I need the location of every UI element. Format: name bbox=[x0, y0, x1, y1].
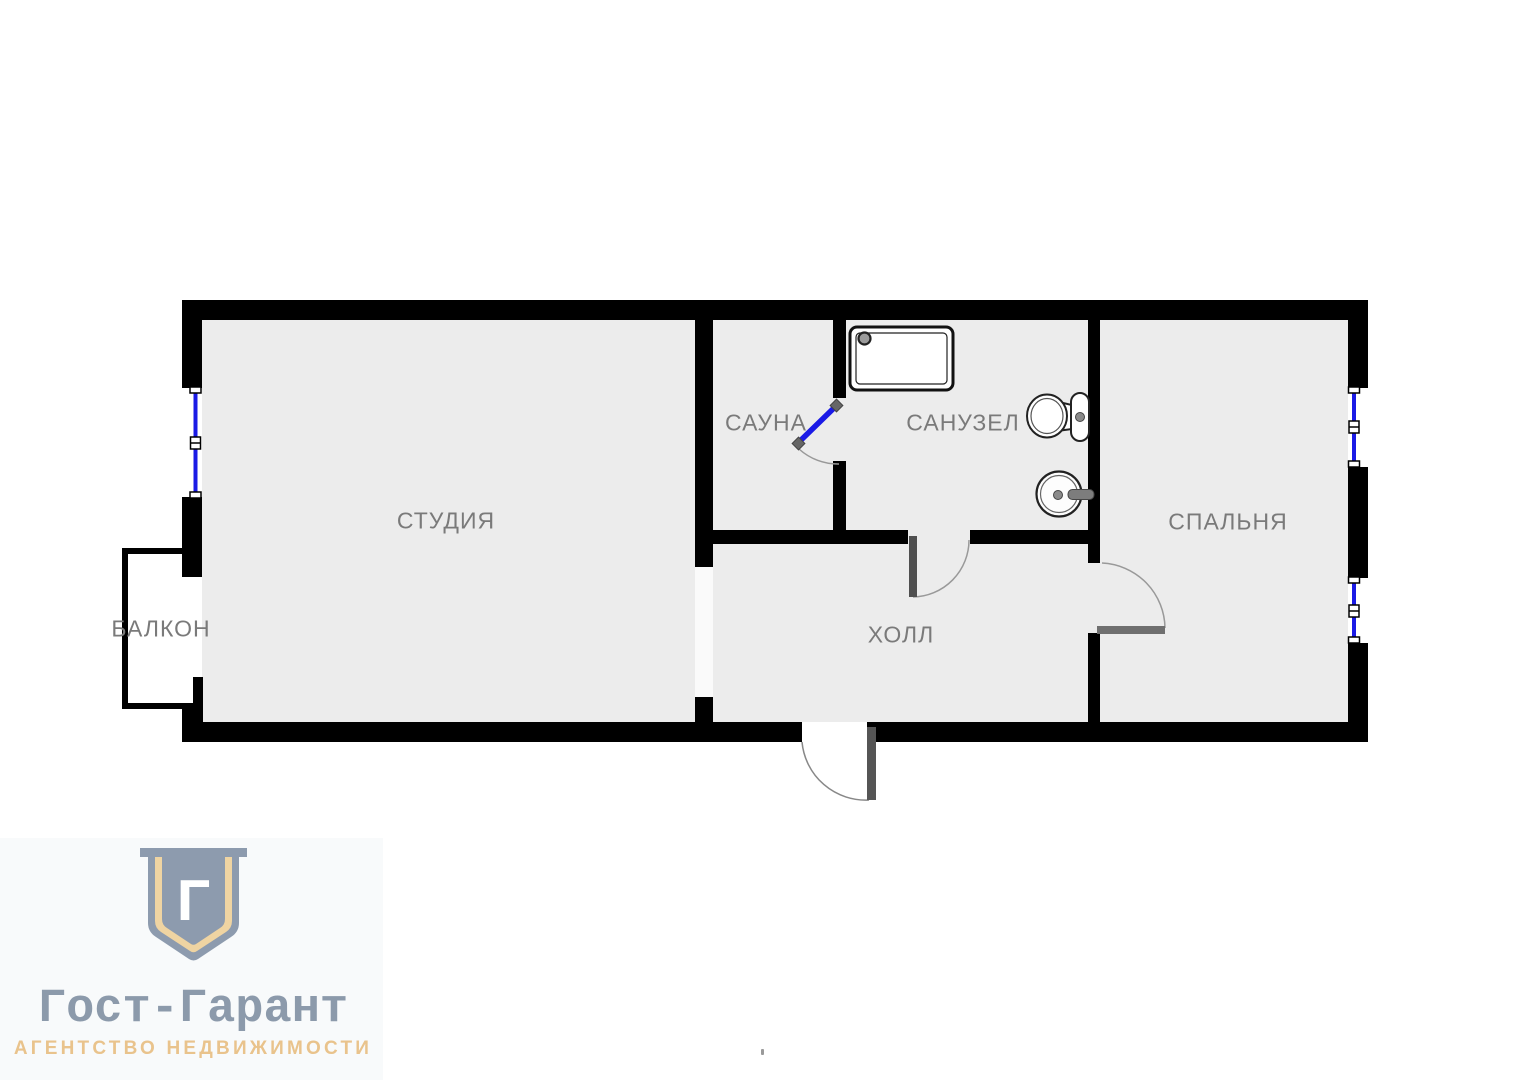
wall-studio-hall-lower bbox=[695, 697, 713, 722]
room-label-bedroom: СПАЛЬНЯ bbox=[1168, 509, 1287, 536]
studio-hall-passage bbox=[695, 567, 713, 697]
wall-outer-left-lower bbox=[182, 707, 203, 724]
wall-outer-left-middle bbox=[182, 497, 202, 577]
wall-outer-left-lower-narrow bbox=[193, 677, 203, 709]
wall-hall-bedroom-lower bbox=[1088, 633, 1100, 722]
wall-studio-hall-upper bbox=[695, 320, 713, 567]
room-label-hall: ХОЛЛ bbox=[868, 622, 934, 649]
room-label-balcony: БАЛКОН bbox=[111, 616, 210, 643]
floorplan-canvas: СТУДИЯ САУНА САНУЗЕЛ СПАЛЬНЯ ХОЛЛ БАЛКОН… bbox=[0, 0, 1528, 1080]
room-label-studio: СТУДИЯ bbox=[397, 508, 495, 535]
wall-hall-top-left bbox=[713, 530, 908, 544]
entrance-opening bbox=[802, 722, 867, 742]
wall-hall-top-right bbox=[970, 530, 1088, 544]
dot-artifact bbox=[761, 1049, 764, 1055]
wall-outer-right-middle bbox=[1348, 467, 1368, 578]
agency-subtitle: АГЕНТСТВО НЕДВИЖИМОСТИ bbox=[0, 1038, 386, 1060]
wall-sauna-bathroom-upper bbox=[833, 320, 846, 398]
window-opening-right-top bbox=[1348, 388, 1368, 467]
wall-outer-right-lower bbox=[1348, 643, 1368, 722]
shield-monogram: Г bbox=[175, 871, 211, 939]
window-opening-right-bottom bbox=[1348, 578, 1368, 643]
wall-outer-right-upper bbox=[1348, 320, 1368, 388]
window-opening-left bbox=[182, 388, 202, 497]
wall-outer-left-upper bbox=[182, 320, 202, 388]
room-label-sauna: САУНА bbox=[725, 410, 807, 437]
wall-outer-bottom-left bbox=[182, 722, 802, 742]
room-label-bathroom: САНУЗЕЛ bbox=[906, 410, 1020, 437]
agency-shield-icon: Г bbox=[140, 848, 247, 966]
wall-bathroom-bedroom-upper bbox=[1088, 320, 1100, 563]
wall-outer-top bbox=[182, 300, 1368, 320]
wall-outer-bottom-right bbox=[867, 722, 1368, 742]
agency-title: Гост-Гарант bbox=[0, 983, 386, 1036]
